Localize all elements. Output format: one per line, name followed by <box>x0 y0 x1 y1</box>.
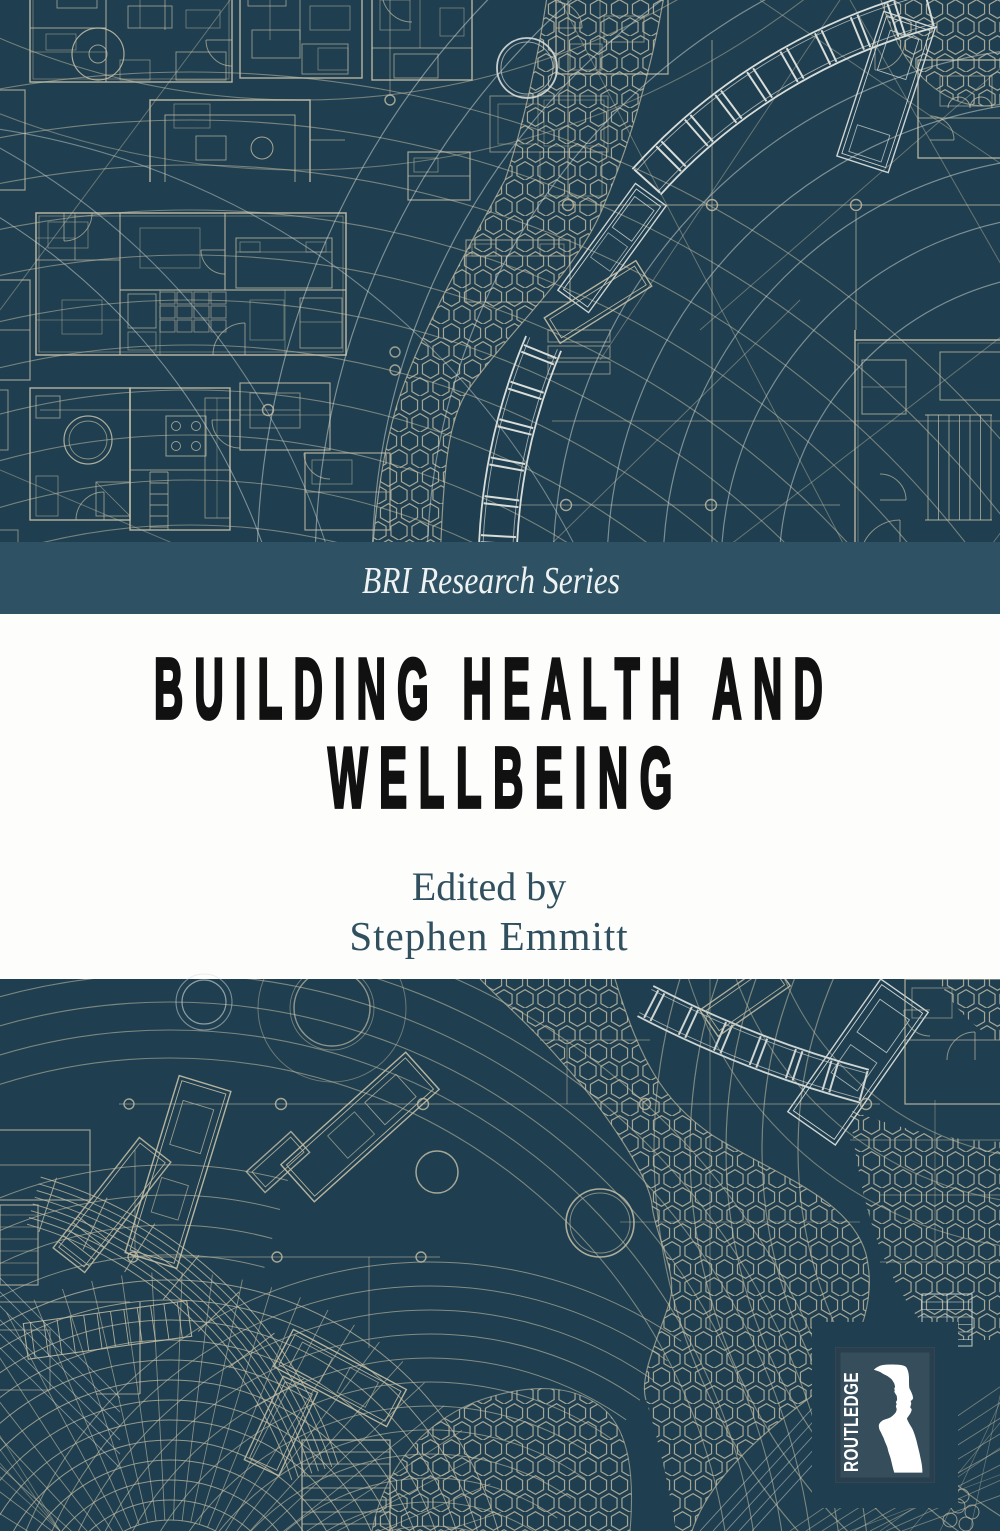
svg-text:BUILDING HEALTH AND: BUILDING HEALTH AND <box>154 642 834 737</box>
svg-text:BRI Research Series: BRI Research Series <box>362 560 620 602</box>
svg-text:Stephen Emmitt: Stephen Emmitt <box>349 913 628 959</box>
svg-text:Edited by: Edited by <box>412 864 566 909</box>
svg-text:ROUTLEDGE: ROUTLEDGE <box>841 1372 863 1472</box>
svg-text:WELLBEING: WELLBEING <box>328 731 684 826</box>
